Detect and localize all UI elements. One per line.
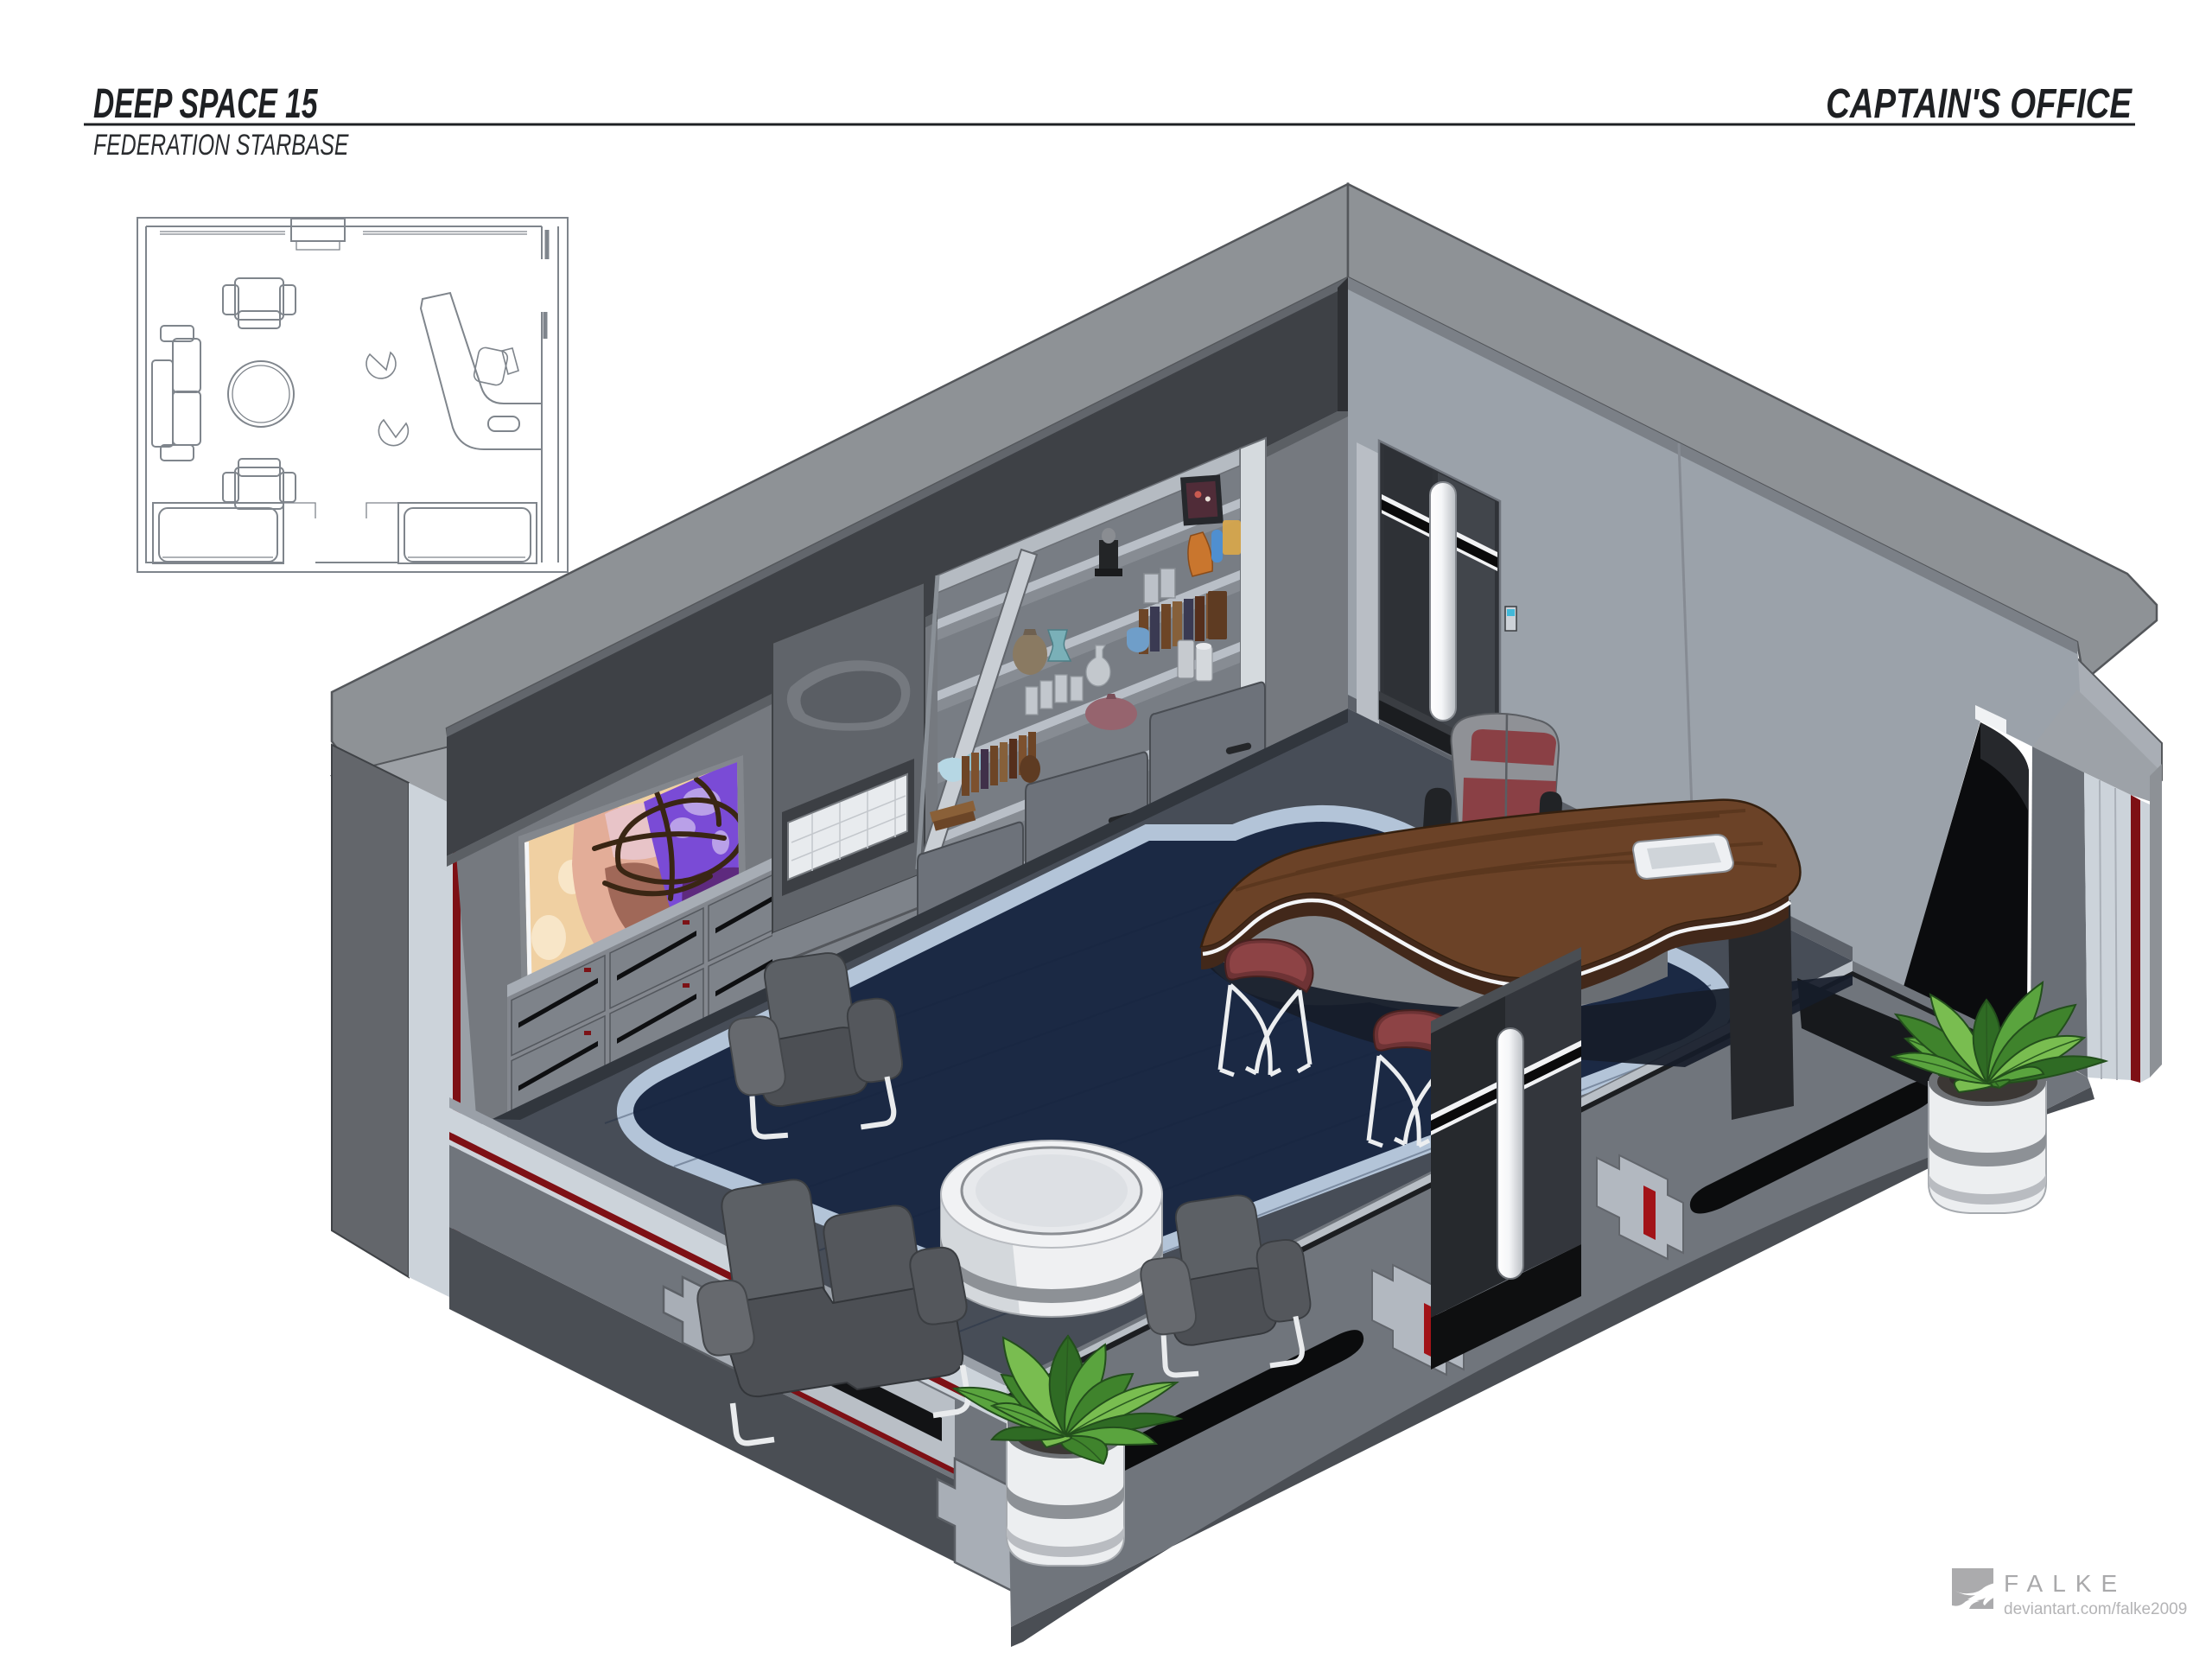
svg-text:DEEP SPACE 15: DEEP SPACE 15 <box>93 79 318 126</box>
svg-text:deviantart.com/falke2009: deviantart.com/falke2009 <box>2004 1600 2187 1618</box>
svg-text:FALKE: FALKE <box>2004 1570 2126 1597</box>
svg-text:FEDERATION STARBASE: FEDERATION STARBASE <box>93 129 349 162</box>
svg-text:CAPTAIN'S OFFICE: CAPTAIN'S OFFICE <box>1826 81 2133 127</box>
